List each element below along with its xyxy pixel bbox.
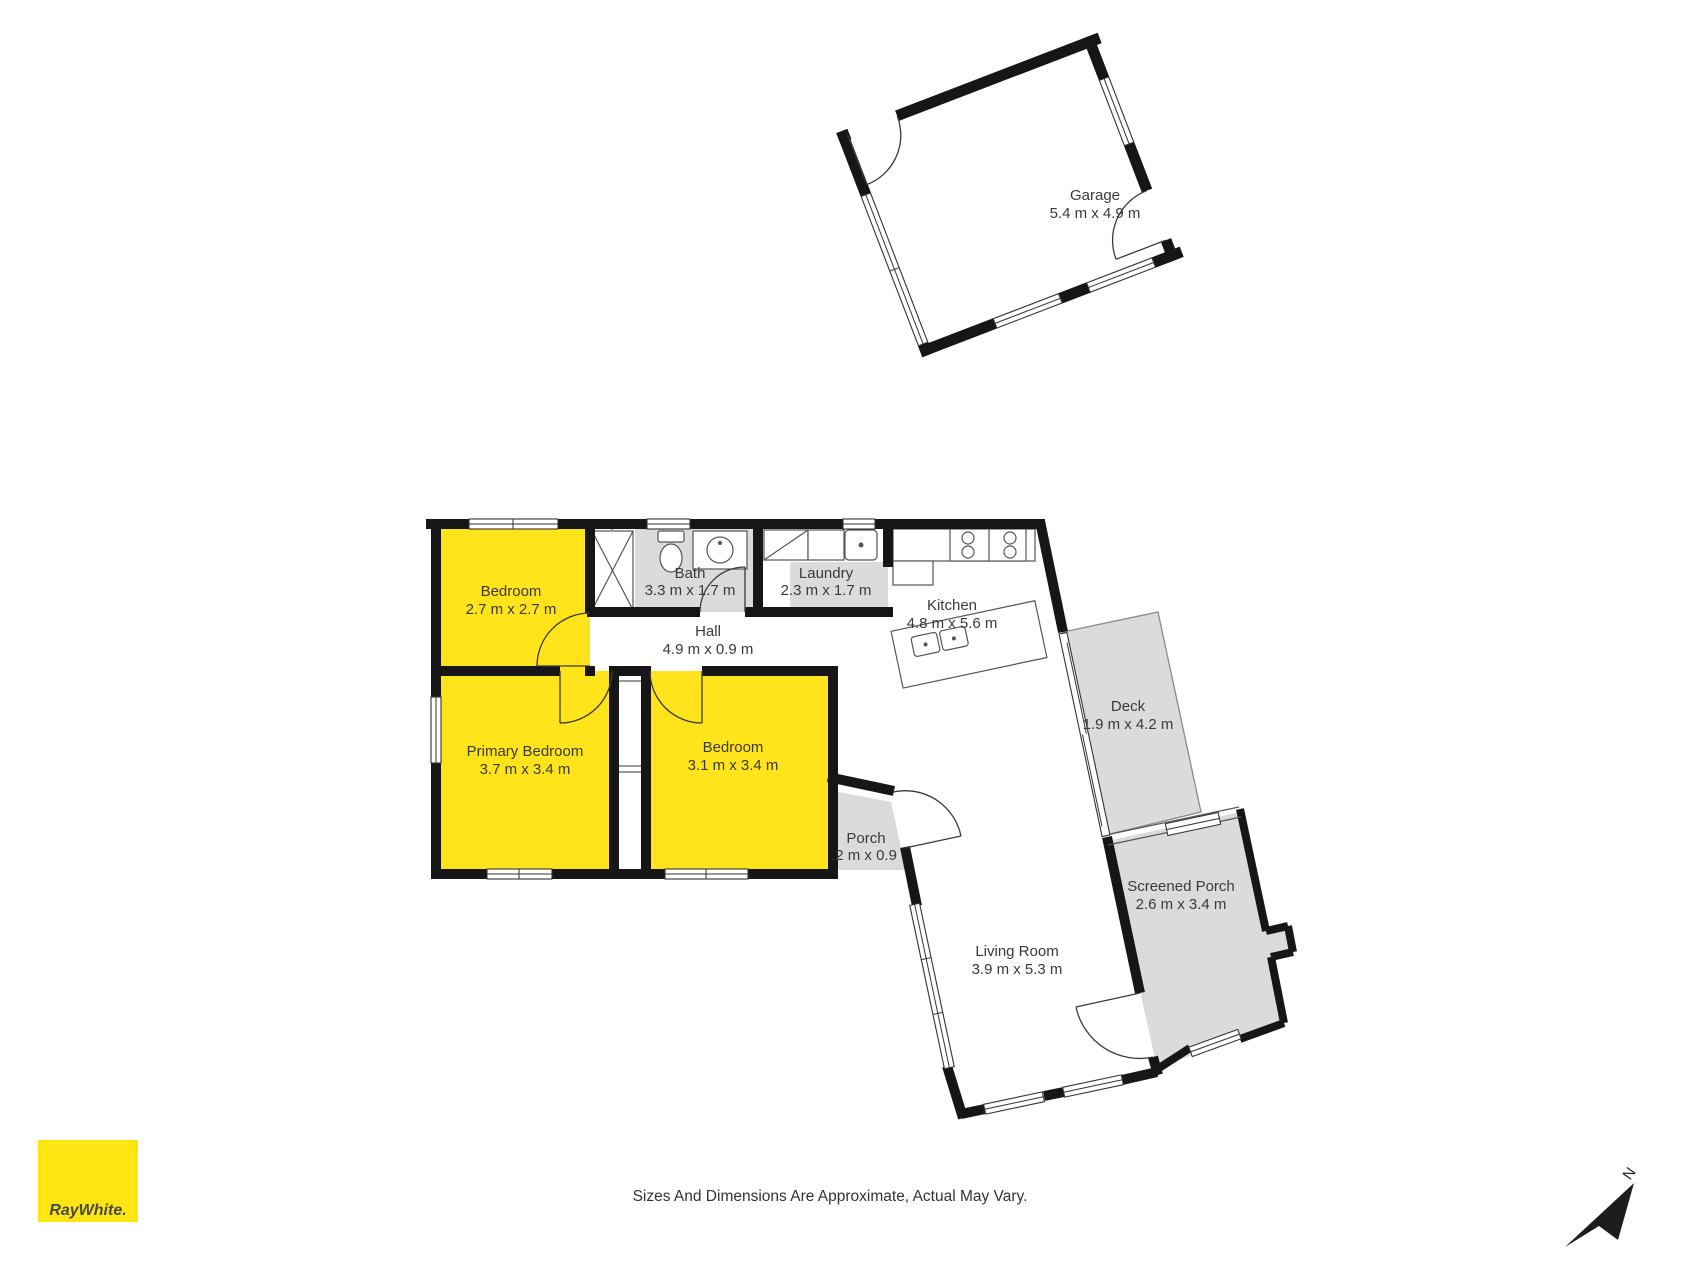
north-label: N	[1620, 1164, 1640, 1183]
living-room-label: Living Room	[975, 943, 1058, 960]
porch-dims: .2 m x 0.9	[831, 847, 897, 864]
bath-label: Bath	[675, 565, 706, 582]
disclaimer-text: Sizes And Dimensions Are Approximate, Ac…	[633, 1188, 1028, 1205]
garage-label: Garage	[1070, 187, 1120, 204]
garage-room	[833, 27, 1187, 363]
raywhite-logo-text: RayWhite.	[49, 1202, 126, 1219]
bath-sink-icon	[693, 531, 747, 569]
floorplan-drawing: Garage 5.4 m x 4.9 m	[0, 0, 1707, 1280]
laundry-label: Laundry	[799, 565, 854, 582]
deck-dims: 1.9 m x 4.2 m	[1083, 716, 1174, 733]
deck-label: Deck	[1111, 698, 1146, 715]
hall-dims: 4.9 m x 0.9 m	[663, 641, 754, 658]
bedroom-mid-label: Bedroom	[703, 739, 764, 756]
screened-porch-dims: 2.6 m x 3.4 m	[1136, 896, 1227, 913]
shower-icon	[592, 522, 633, 610]
primary-bedroom-dims: 3.7 m x 3.4 m	[480, 761, 571, 778]
stove-icon	[950, 529, 1026, 561]
porch-label: Porch	[846, 830, 885, 847]
laundry-sink-icon	[764, 530, 877, 560]
raywhite-logo: RayWhite.	[38, 1140, 138, 1222]
primary-bedroom-label: Primary Bedroom	[467, 743, 584, 760]
bath-dims: 3.3 m x 1.7 m	[645, 582, 736, 599]
living-room-dims: 3.9 m x 5.3 m	[972, 961, 1063, 978]
garage-dims: 5.4 m x 4.9 m	[1050, 205, 1141, 222]
floorplan-page: Garage 5.4 m x 4.9 m	[0, 0, 1707, 1280]
kitchen-dims: 4.8 m x 5.6 m	[907, 615, 998, 632]
bedroom-mid-dims: 3.1 m x 3.4 m	[688, 757, 779, 774]
north-arrow-icon: N	[1565, 1164, 1640, 1247]
closet	[618, 681, 642, 870]
bedroom-top-label: Bedroom	[481, 583, 542, 600]
laundry-dims: 2.3 m x 1.7 m	[781, 582, 872, 599]
hall-label: Hall	[695, 623, 721, 640]
bedroom-top-dims: 2.7 m x 2.7 m	[466, 601, 557, 618]
screened-porch-label: Screened Porch	[1127, 878, 1235, 895]
kitchen-label: Kitchen	[927, 597, 977, 614]
